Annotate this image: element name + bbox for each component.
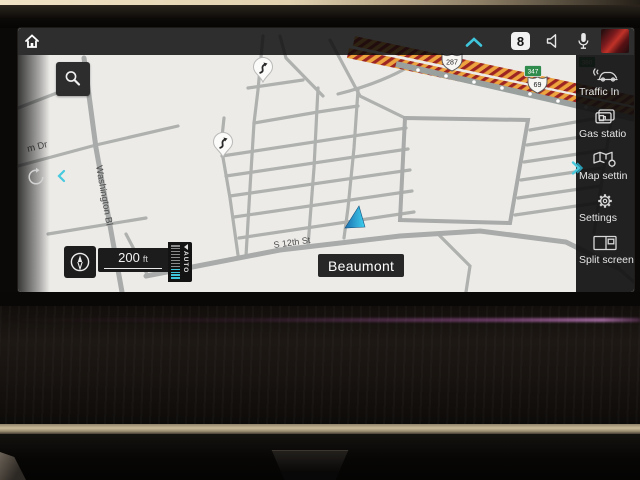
sidebar-item-traffic-info[interactable]: Traffic In: [576, 65, 634, 107]
sidebar-menu: Traffic In Gas statio: [576, 55, 634, 292]
metal-trim-strip: [0, 424, 640, 434]
wood-trim-panel: [0, 306, 640, 424]
map-settings-icon: [576, 149, 634, 169]
zoom-ticks: [168, 242, 180, 282]
chevron-up-icon[interactable]: [464, 35, 484, 53]
sidebar-item-label: Split screen: [579, 254, 634, 266]
magnifier-icon: [63, 69, 83, 89]
sidebar-item-label: Map settin: [579, 170, 627, 182]
auto-zoom-arrow-icon: [184, 244, 188, 250]
infotainment-screen: m Dr Washington Bl S 12th St 287 69 347: [18, 28, 634, 292]
scale-value: 200: [118, 250, 140, 265]
home-button[interactable]: [24, 33, 40, 55]
traffic-info-icon: [576, 65, 634, 85]
auto-zoom-label: AUTO: [182, 251, 189, 273]
svg-text:347: 347: [528, 69, 539, 76]
dashboard-photo: m Dr Washington Bl S 12th St 287 69 347: [0, 0, 640, 480]
scale-unit: ft: [143, 254, 148, 264]
gas-stations-icon: [576, 107, 634, 127]
ambient-light-reflection: [0, 318, 640, 322]
notification-count-badge[interactable]: 8: [511, 32, 530, 50]
sidebar-item-split-screen[interactable]: Split screen: [576, 233, 634, 275]
svg-text:287: 287: [446, 60, 458, 67]
screen-lower-bezel: [0, 292, 640, 306]
dashboard-upper-trim: [0, 5, 640, 28]
search-button[interactable]: [56, 62, 90, 96]
status-bar: [18, 28, 634, 55]
sidebar-item-label: Settings: [579, 212, 617, 224]
scale-bar: [104, 268, 162, 270]
split-screen-icon: [576, 233, 634, 253]
chevron-left-icon[interactable]: [55, 169, 67, 188]
sidebar-item-label: Traffic In: [579, 86, 619, 98]
map-scale[interactable]: 200 ft: [98, 248, 168, 272]
home-icon: [24, 33, 40, 50]
green-route-badge-347: 347: [525, 66, 542, 77]
sidebar-item-settings[interactable]: Settings: [576, 191, 634, 233]
speaker-icon[interactable]: [544, 32, 562, 55]
media-thumbnail[interactable]: [601, 29, 629, 53]
gear-icon: [576, 191, 634, 211]
city-label: Beaumont: [318, 254, 404, 277]
sidebar-item-gas-stations[interactable]: Gas statio: [576, 107, 634, 149]
compass-button[interactable]: [64, 246, 96, 278]
svg-text:69: 69: [534, 81, 542, 89]
circular-arrow-icon[interactable]: [26, 167, 46, 187]
zoom-level-indicator[interactable]: AUTO: [168, 242, 192, 282]
sidebar-item-map-settings[interactable]: Map settin: [576, 149, 634, 191]
sidebar-item-label: Gas statio: [579, 128, 626, 140]
microphone-icon[interactable]: [576, 31, 591, 57]
compass-icon: [69, 251, 91, 273]
chevron-right-icon[interactable]: [570, 160, 584, 181]
